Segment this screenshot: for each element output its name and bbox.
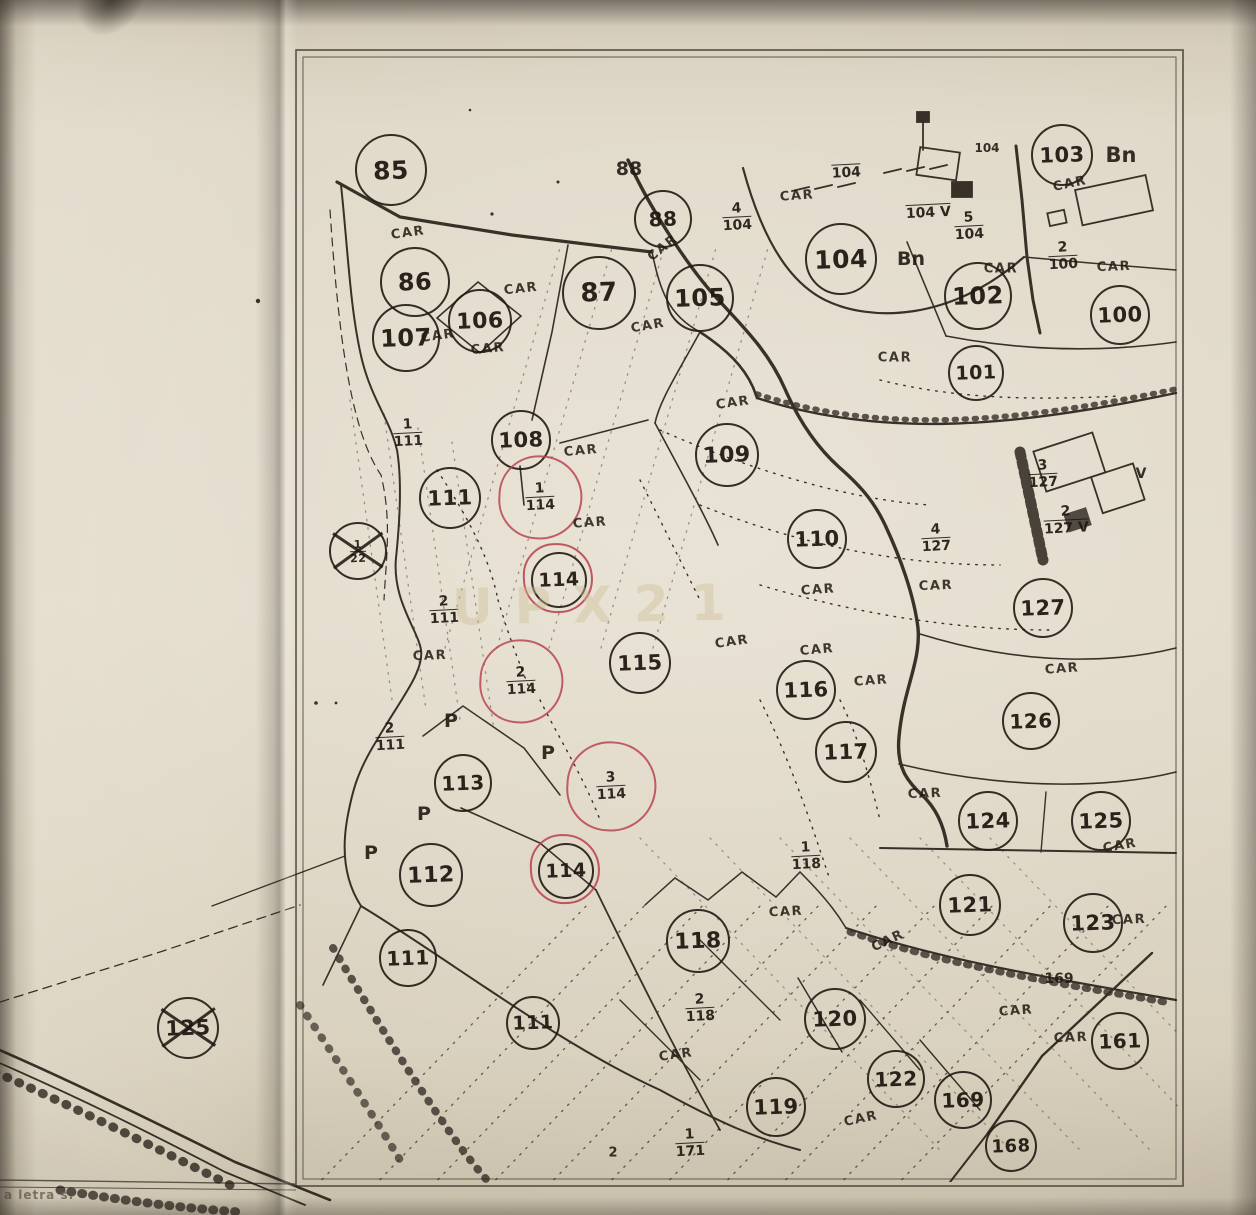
crop-label-car: CAR [843,1108,880,1130]
parcel-number-circle-116: 116 [775,659,837,721]
parcel-number-circle-87: 87 [561,255,638,332]
crop-label-car: CAR [413,648,448,664]
parcel-number-circle-126: 126 [1001,691,1061,751]
map-text-label-v: V [1136,466,1147,482]
fraction-label-x-104: 104 [831,151,862,180]
parcel-number-circle-113: 113 [433,753,493,813]
parcel-number-circle-105: 105 [665,263,735,333]
fraction-label-1-171: 1171 [675,1127,706,1159]
fraction-label-3-114: 3114 [596,770,627,802]
parcel-number-circle-115: 115 [608,631,672,695]
parcel-number-circle-111: 111 [378,928,438,988]
fraction-label-3-127: 3127 [1028,458,1059,490]
fraction-label-4-127: 4127 [921,522,952,554]
crop-label-car: CAR [390,223,426,243]
fraction-label-x-104: 104 V [905,191,951,221]
crop-label-car: CAR [630,316,667,337]
fraction-label-2-127: 2127 V [1043,503,1089,536]
fraction-label-2-100: 2100 [1048,240,1079,272]
fraction-label-5-104: 5104 [954,210,985,242]
parcel-number-circle-125: 125 [156,996,220,1060]
map-text-label-169: 169 [1044,971,1073,987]
fraction-label-4-104: 4104 [722,201,753,233]
margin-note: a letra s. [4,1188,74,1202]
parcel-number-circle-168: 168 [984,1119,1038,1173]
parcel-number-circle-104: 104 [804,222,878,296]
crop-label-car: CAR [572,514,607,531]
crop-label-car: CAR [1112,912,1147,928]
scanned-cadastral-map-photo: 8586107106878810510410310210010110810911… [0,0,1256,1215]
parcel-number-circle: 122 [328,521,388,581]
parcel-number-circle-121: 121 [938,873,1002,937]
crop-label-car: CAR [1054,1030,1089,1046]
crop-label-car: CAR [919,578,954,594]
crop-label-car: CAR [563,442,599,460]
map-text-label-p: P [417,803,431,825]
parcel-number-circle-120: 120 [803,987,867,1051]
crop-label-car: CAR [658,1045,694,1065]
parcel-number-circle-100: 100 [1089,284,1151,346]
crop-label-car: CAR [799,641,835,659]
parcel-number-circle-101: 101 [947,344,1005,402]
parcel-number-circle-114: 114 [537,842,595,900]
parcel-number-circle-110: 110 [786,508,848,570]
map-text-label-bn: Bn [1106,143,1137,167]
parcel-number-circle-85: 85 [354,133,428,207]
parcel-number-circle-161: 161 [1090,1011,1150,1071]
crop-label-car: CAR [768,904,803,921]
crop-label-car: CAR [714,632,750,652]
parcel-number-circle-124: 124 [957,790,1019,852]
map-text-label-p: P [444,710,458,732]
parcel-number-circle-169: 169 [933,1070,993,1130]
crop-label-car: CAR [1097,259,1132,275]
crop-label-car: CAR [800,581,835,598]
fraction-label-1-114: 1114 [525,481,556,513]
crop-label-car: CAR [470,340,506,358]
crop-label-car: CAR [853,672,888,689]
fraction-label-2-111: 2111 [375,721,406,753]
crop-label-car: CAR [715,393,751,413]
fraction-label-1-111: 1111 [393,417,424,449]
crop-label-car: CAR [1044,660,1079,677]
crop-label-car: CAR [908,786,943,802]
crop-label-car: CAR [869,927,907,955]
fraction-label-2-118: 2118 [685,992,716,1024]
parcel-number-circle-111: 111 [418,466,482,530]
parcel-number-circle-108: 108 [490,409,552,471]
parcel-number-circle-117: 117 [814,720,878,784]
map-markers: 8586107106878810510410310210010110810911… [0,0,1256,1215]
crop-label-car: CAR [420,326,456,346]
parcel-number-circle-112: 112 [398,842,464,908]
parcel-number-circle-118: 118 [665,908,731,974]
map-text-label-bn: Bn [897,248,925,270]
fraction-label-2-111: 2111 [429,594,460,626]
map-text-label-104: 104 [974,141,999,155]
crop-label-car: CAR [779,187,814,204]
crop-label-car: CAR [998,1002,1033,1019]
crop-label-car: CAR [878,351,912,366]
parcel-number-circle-119: 119 [745,1076,807,1138]
parcel-number-circle-109: 109 [694,422,760,488]
parcel-number-circle-111: 111 [505,995,561,1051]
crop-label-car: CAR [984,262,1018,277]
map-text-label-p: P [541,742,555,764]
fraction-label-2-114: 2114 [506,665,537,697]
fraction-label-1-118: 1118 [791,840,822,872]
crop-label-car: CAR [503,280,539,299]
parcel-number-circle-127: 127 [1012,577,1074,639]
parcel-number-circle-114: 114 [530,551,588,609]
map-text-label-p: P [364,842,378,864]
map-text-label-88: 88 [616,158,642,180]
map-text-label-2: 2 [608,1146,617,1161]
parcel-number-circle-122: 122 [866,1049,926,1109]
